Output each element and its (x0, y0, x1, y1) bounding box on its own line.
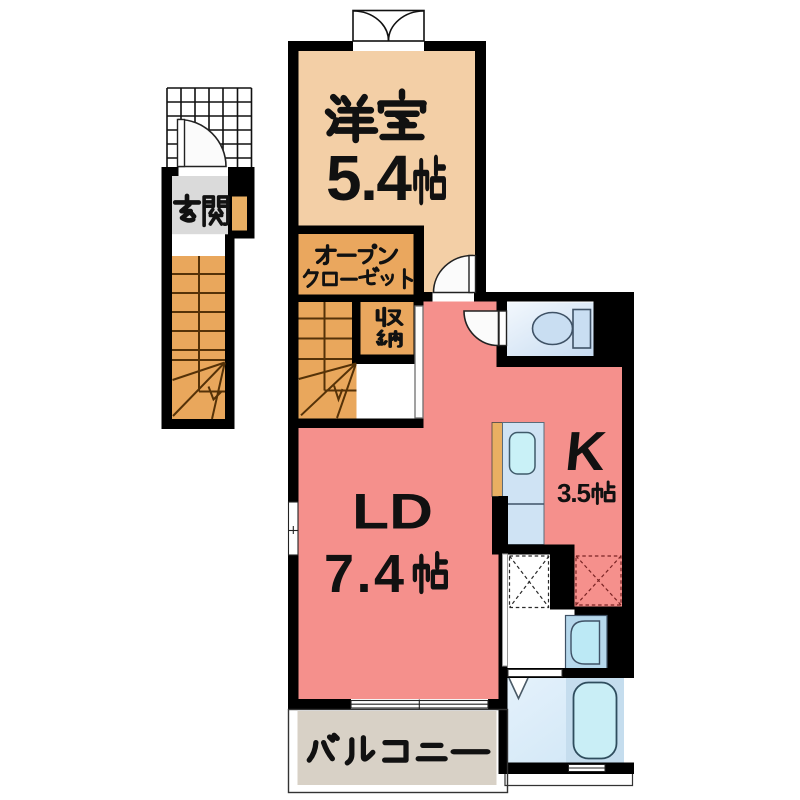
svg-text:3.5: 3.5 (557, 478, 591, 508)
svg-text:5.4: 5.4 (326, 142, 412, 214)
svg-text:7.4: 7.4 (324, 544, 404, 604)
svg-text:K: K (563, 420, 609, 482)
svg-text:LD: LD (352, 484, 433, 540)
